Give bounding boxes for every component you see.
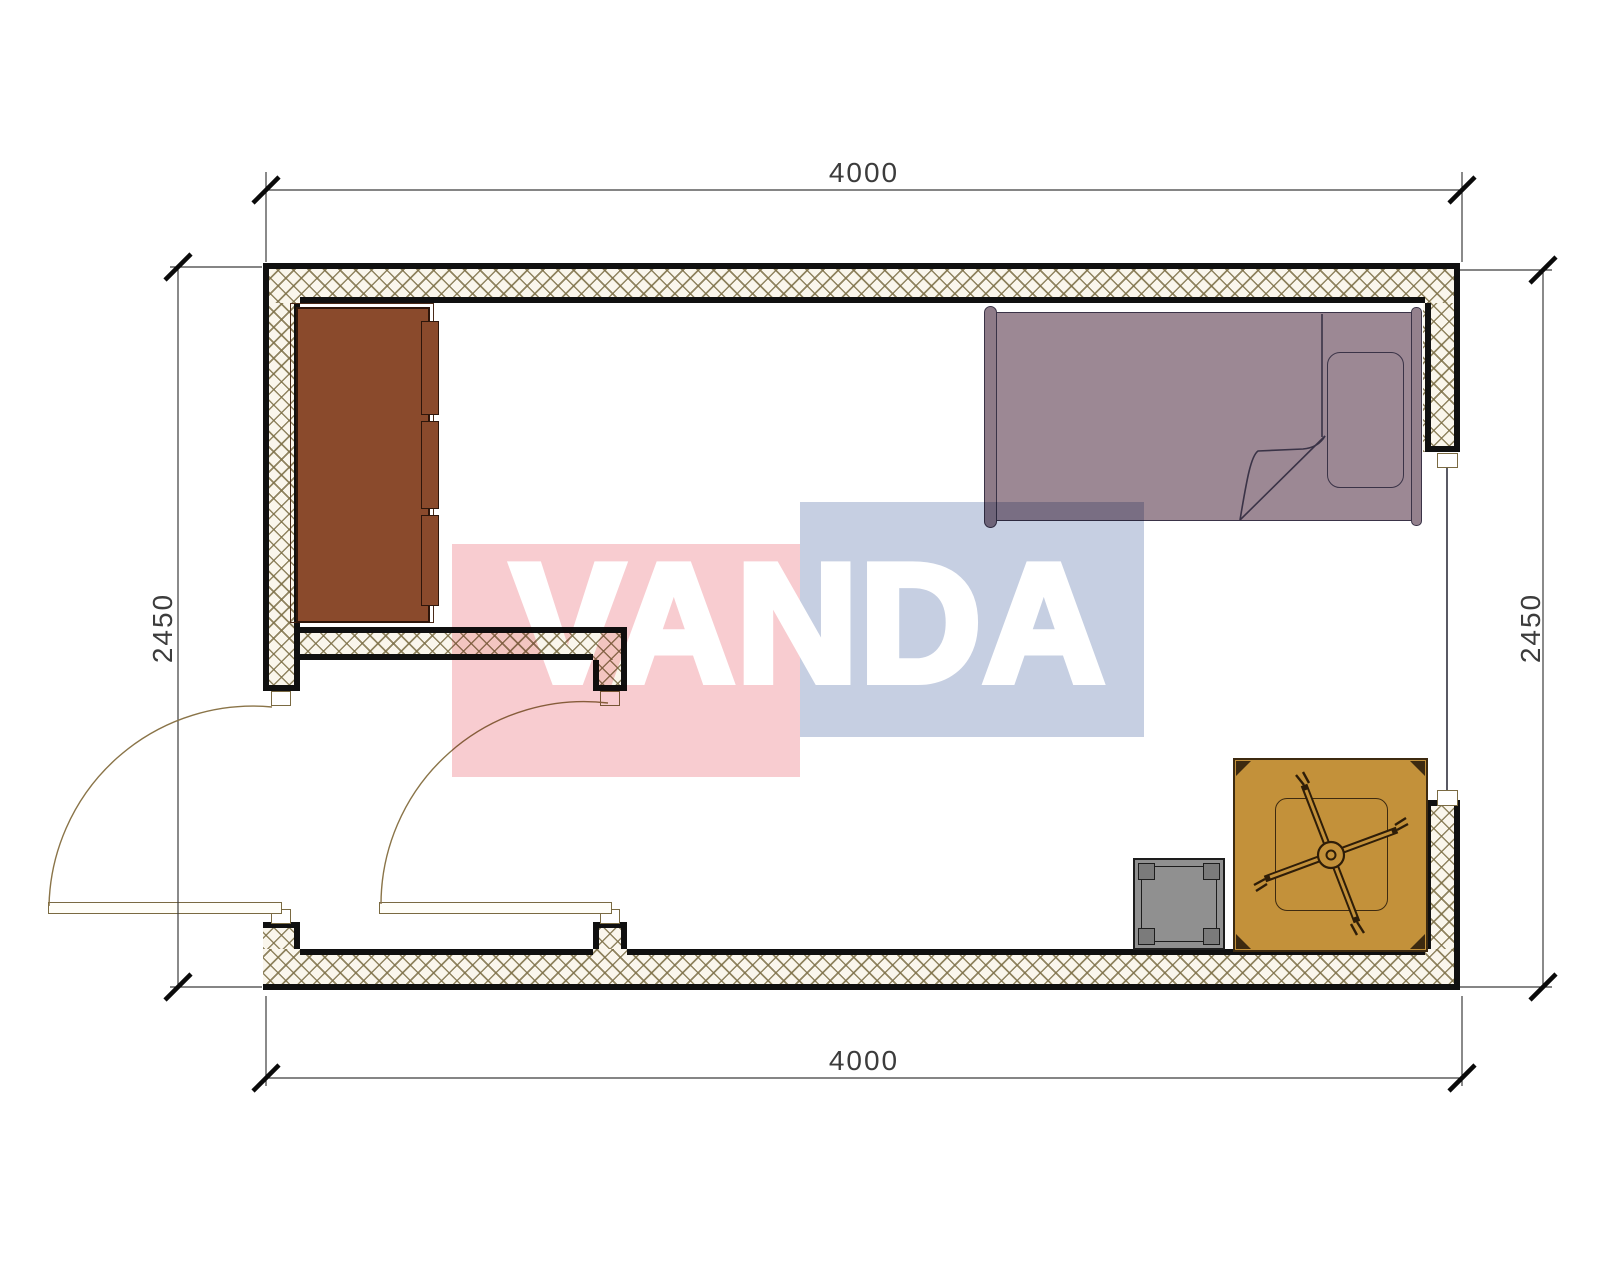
- dimension-lines: [170, 172, 1552, 1086]
- dim-label-right: 2450: [1516, 528, 1546, 728]
- door-swing-arcs: [49, 702, 608, 906]
- linework-overlay: [0, 0, 1600, 1280]
- floor-plan-canvas: VANDA: [0, 0, 1600, 1280]
- plan-layer: 4000 4000 2450 2450: [0, 0, 1600, 1280]
- blanket-fold: [1240, 314, 1325, 520]
- ceiling-fan-icon: [1254, 772, 1408, 935]
- dimension-ticks: [165, 177, 1556, 1091]
- dim-label-top: 4000: [764, 158, 964, 188]
- dim-label-bottom: 4000: [764, 1046, 964, 1076]
- dim-label-left: 2450: [148, 528, 178, 728]
